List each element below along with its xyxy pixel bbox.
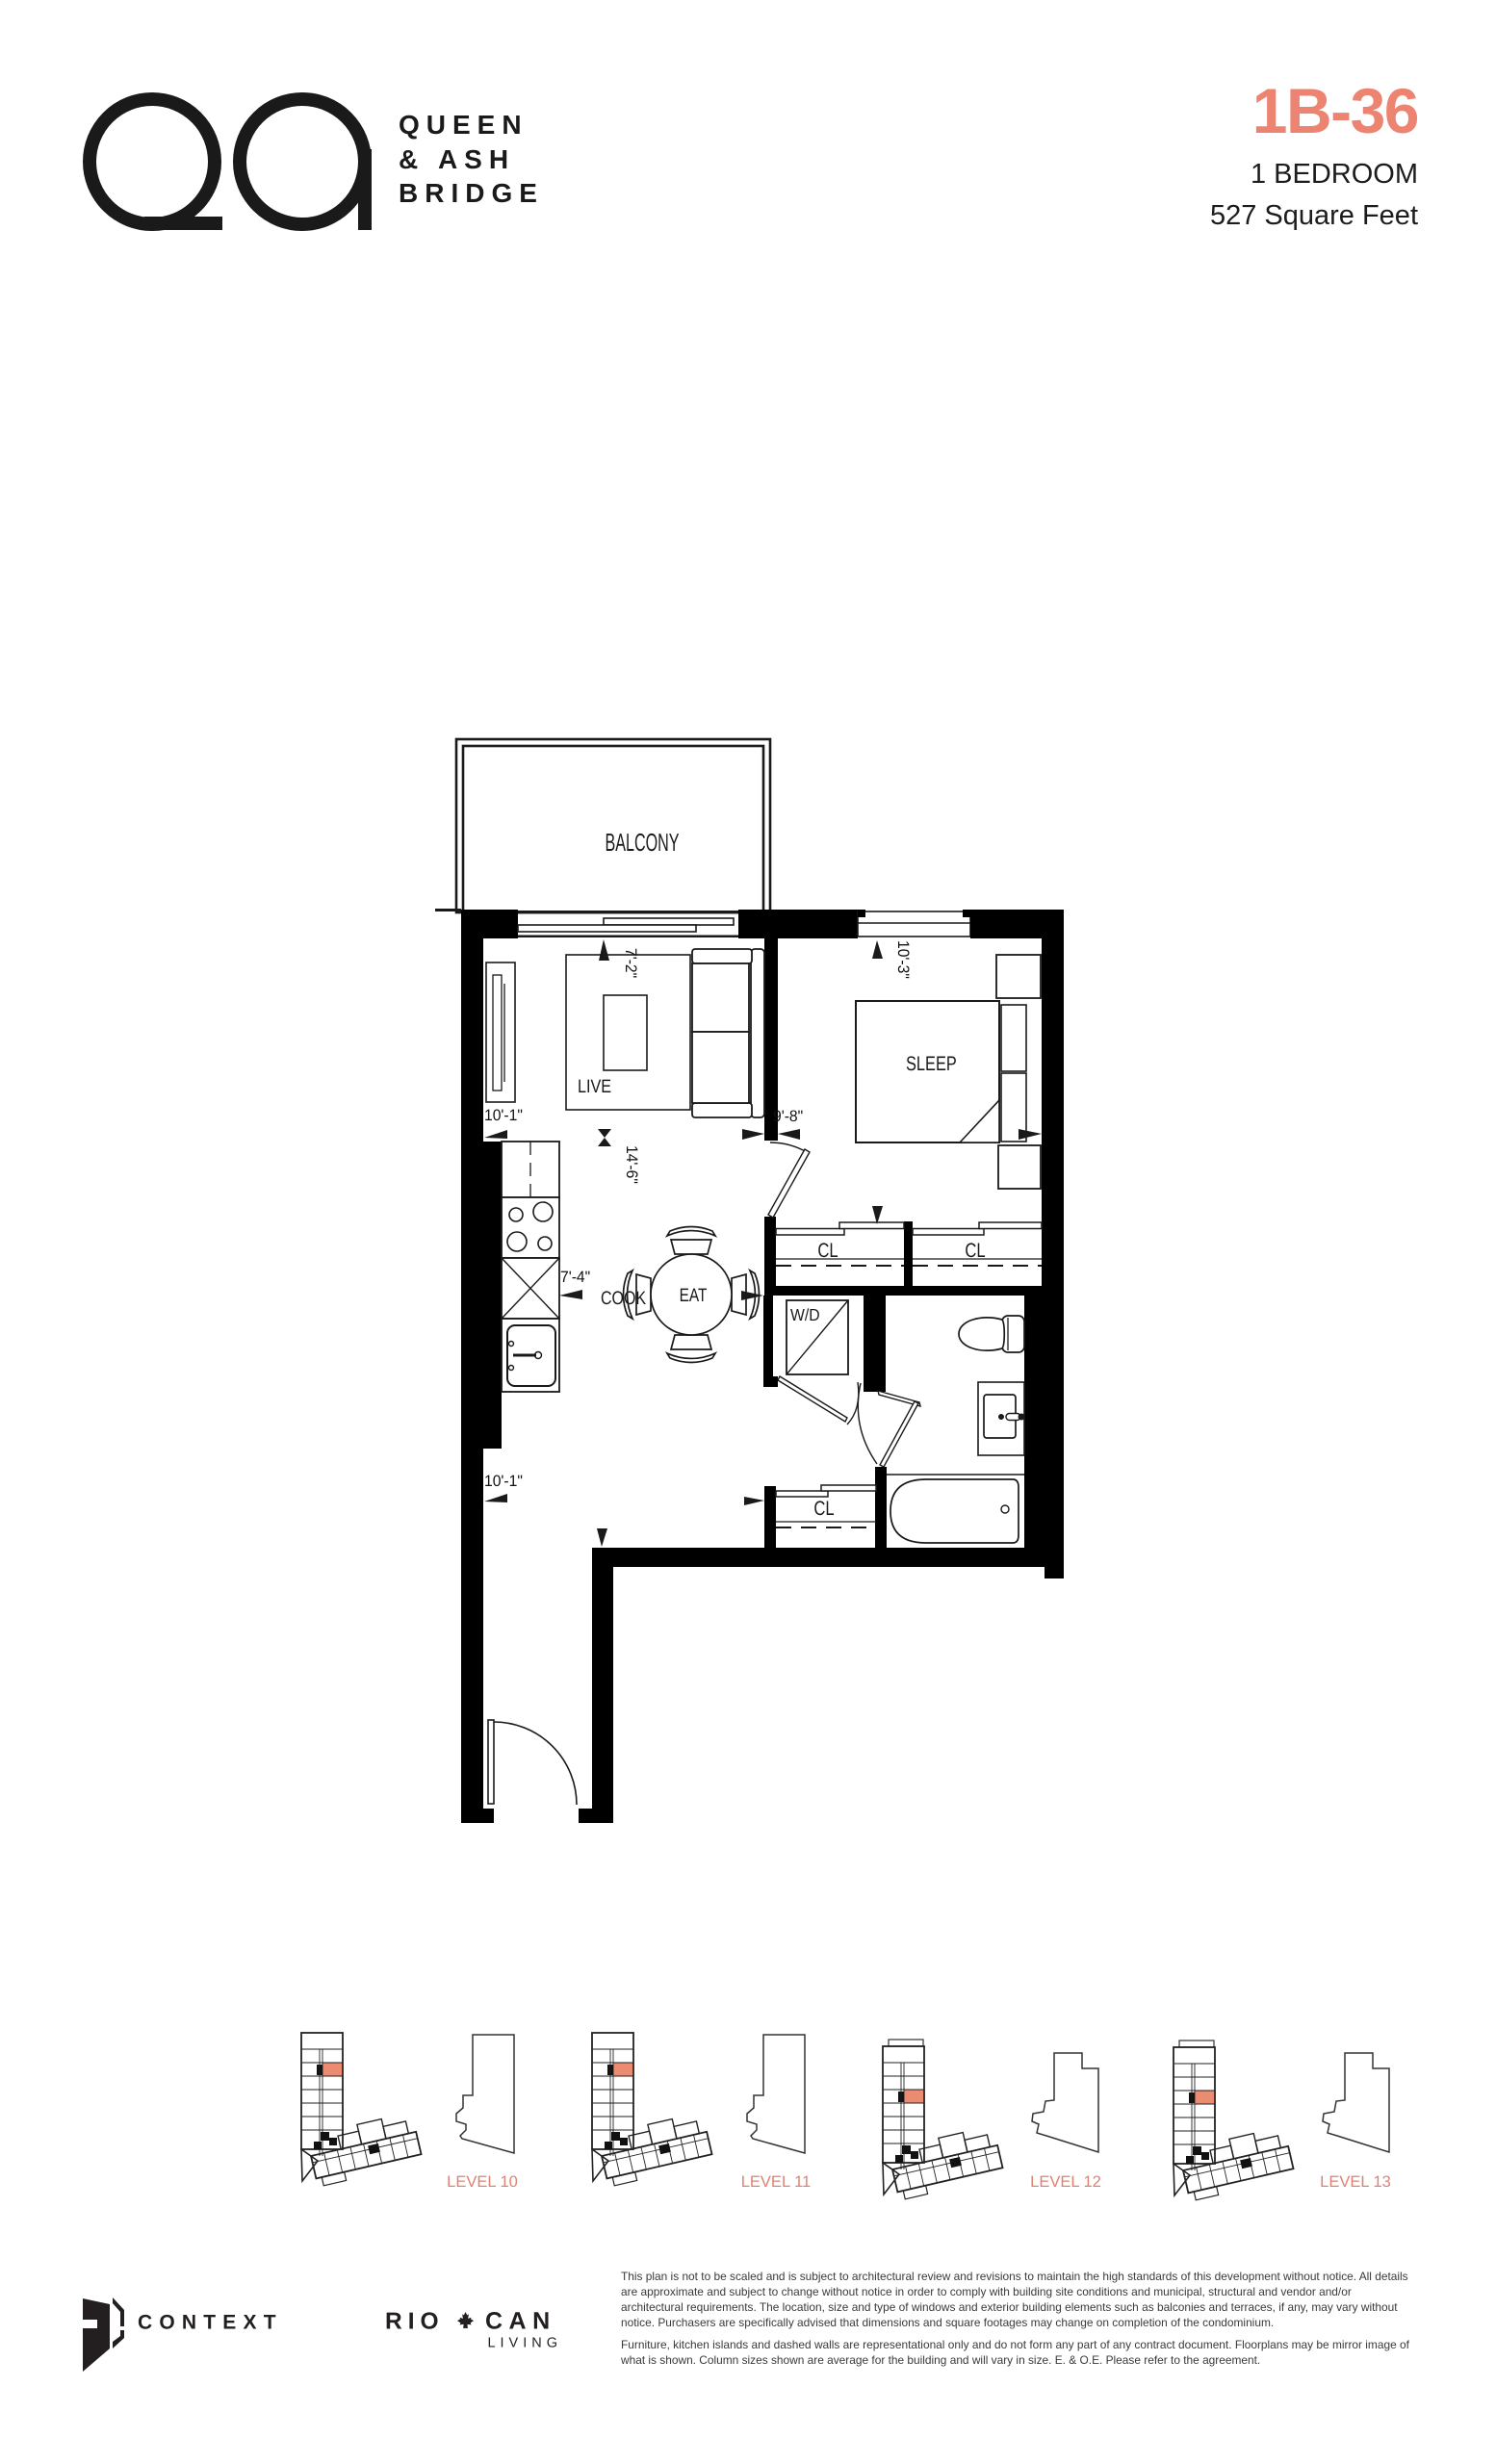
svg-text:SLEEP: SLEEP (906, 1053, 957, 1075)
svg-text:W/D: W/D (790, 1305, 820, 1324)
svg-text:EAT: EAT (680, 1285, 708, 1306)
svg-text:7'-4": 7'-4" (560, 1269, 590, 1286)
svg-text:14'-6": 14'-6" (623, 1145, 640, 1184)
svg-text:7'-2": 7'-2" (622, 948, 639, 978)
svg-text:RIO: RIO (385, 2309, 445, 2335)
svg-text:LEVEL 11: LEVEL 11 (741, 2173, 811, 2191)
svg-text:10'-3": 10'-3" (894, 940, 912, 979)
svg-text:CONTEXT: CONTEXT (138, 2312, 283, 2334)
svg-text:10'-1": 10'-1" (484, 1473, 523, 1490)
svg-text:LIVING: LIVING (487, 2336, 562, 2351)
svg-text:CAN: CAN (485, 2308, 556, 2335)
svg-text:BALCONY: BALCONY (605, 828, 679, 857)
svg-text:9'-8": 9'-8" (773, 1108, 803, 1125)
svg-text:CL: CL (817, 1240, 838, 1262)
svg-text:LEVEL 13: LEVEL 13 (1320, 2173, 1391, 2191)
svg-text:LEVEL 12: LEVEL 12 (1030, 2173, 1101, 2191)
svg-text:LIVE: LIVE (578, 1076, 611, 1097)
svg-text:10'-1": 10'-1" (484, 1107, 523, 1124)
svg-text:LEVEL 10: LEVEL 10 (447, 2173, 518, 2191)
svg-text:COOK: COOK (601, 1288, 646, 1309)
svg-text:CL: CL (813, 1498, 834, 1520)
svg-text:CL: CL (965, 1240, 985, 1262)
